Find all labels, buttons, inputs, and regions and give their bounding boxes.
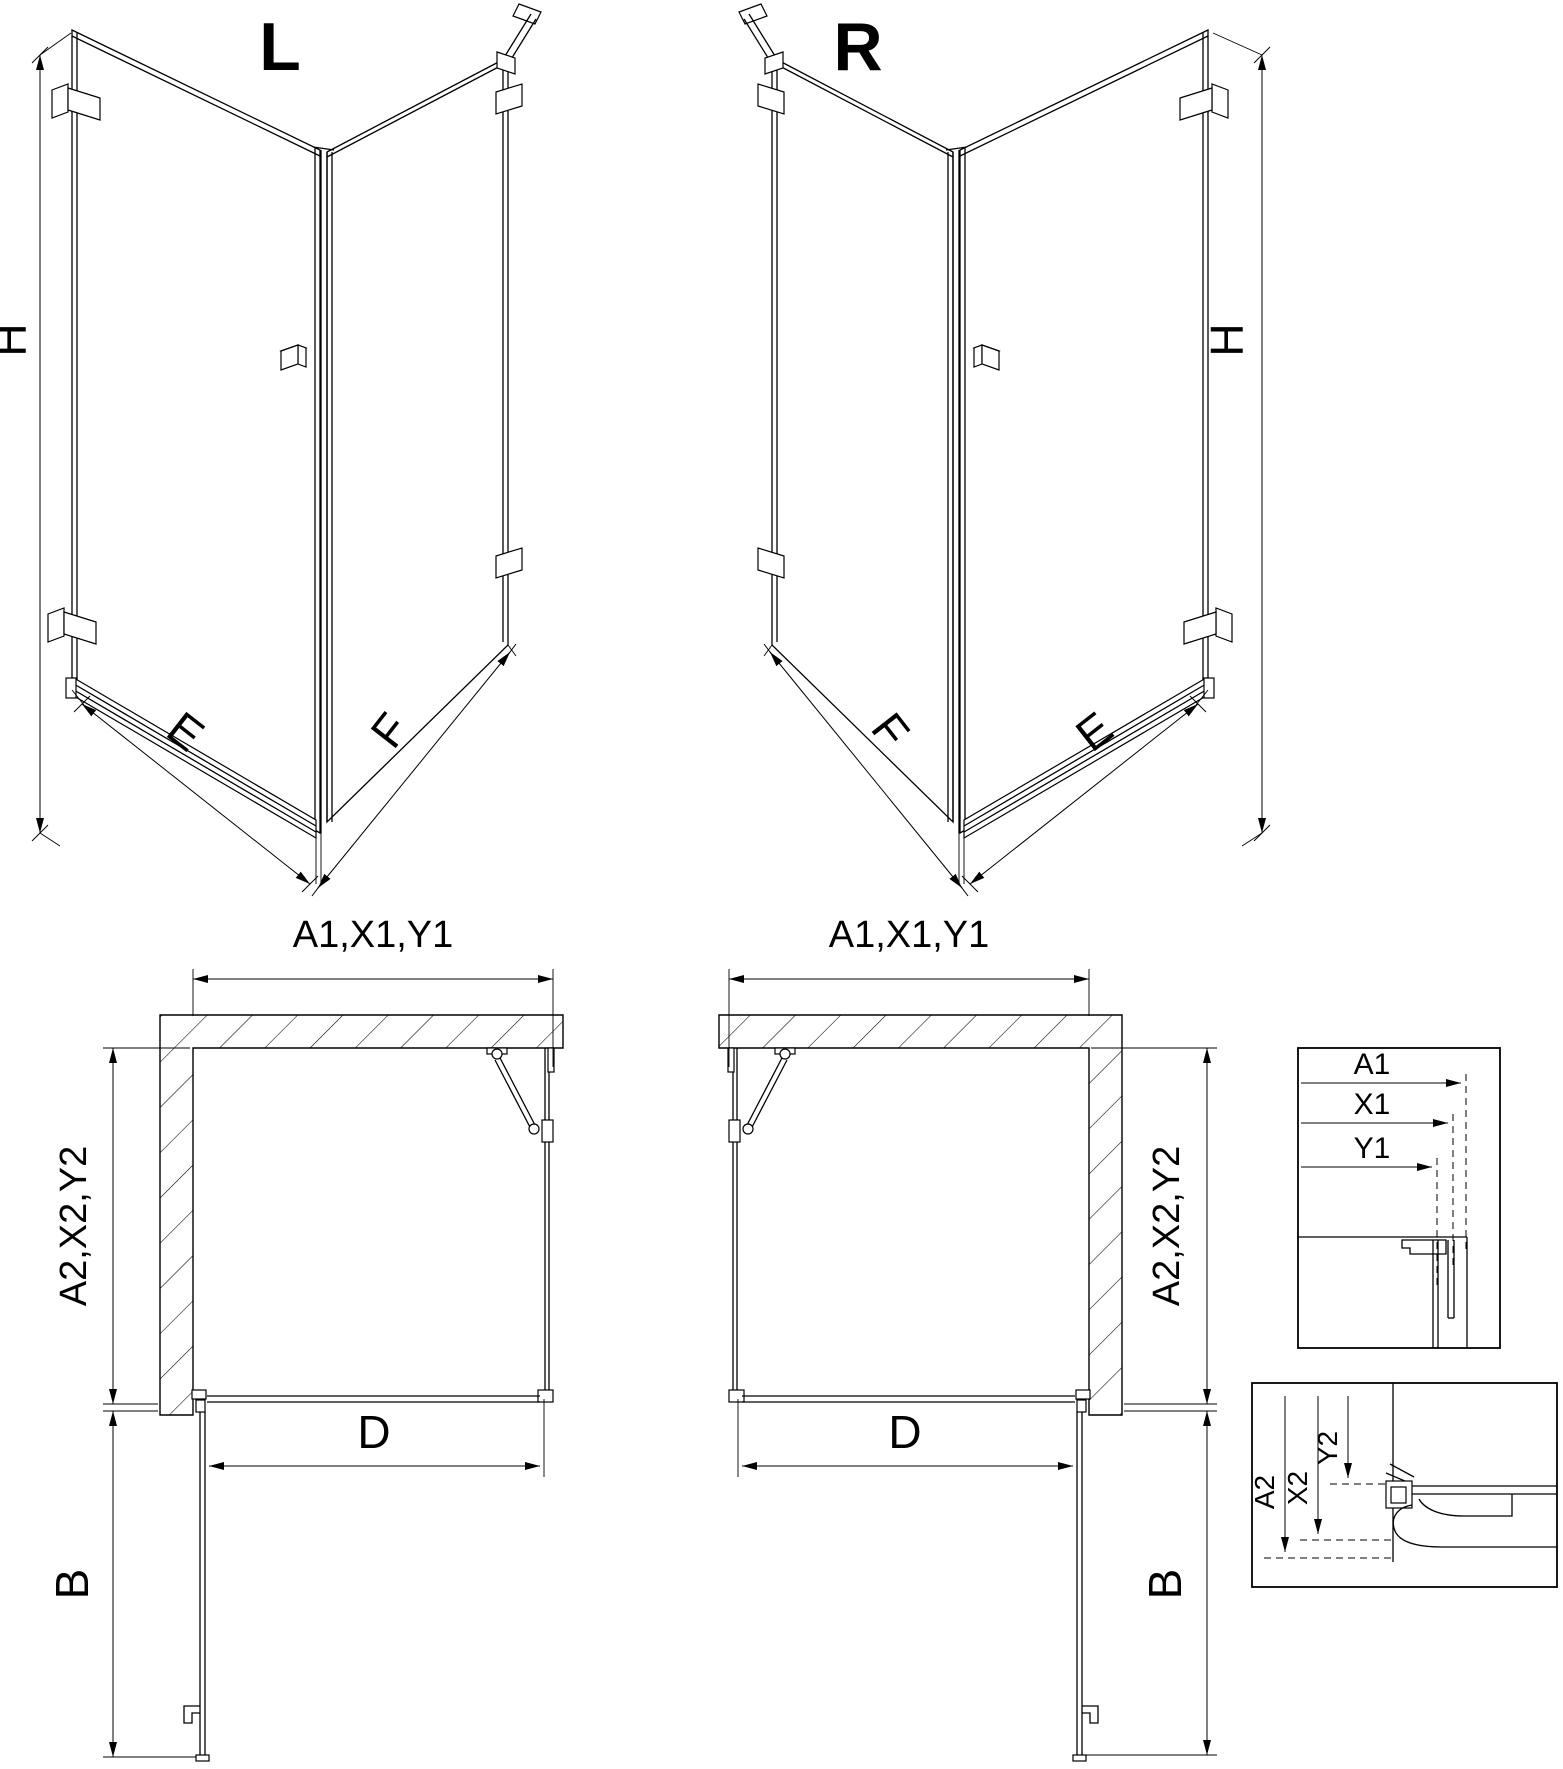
- dim-label-e-right: E: [1066, 701, 1122, 761]
- fixed-panel-right-view: [772, 57, 953, 822]
- drawing-canvas: L H E F: [0, 0, 1563, 1769]
- wall-bracket-icon: [758, 548, 784, 578]
- hinge-bottom-icon: [48, 608, 64, 642]
- technical-drawing-sheet: L H E F: [0, 0, 1563, 1769]
- support-bar-icon: [497, 4, 541, 74]
- dim-label-d-left: D: [357, 1406, 390, 1458]
- dim-label-d-right: D: [888, 1406, 921, 1458]
- support-bar-icon: [739, 4, 783, 74]
- door-handle-icon: [281, 345, 306, 370]
- detail-box-bottom: A2 X2 Y2: [1249, 1383, 1557, 1587]
- door-handle-icon: [974, 345, 999, 370]
- open-door-plan: [184, 1390, 209, 1761]
- dim-line-f-right: [770, 652, 962, 888]
- view-title-left: L: [259, 9, 301, 85]
- dim-line-f-left: [318, 652, 510, 888]
- wall-bracket-icon: [758, 84, 784, 114]
- detail-label-a2: A2: [1249, 1475, 1280, 1509]
- detail-label-x1: X1: [1354, 1088, 1391, 1121]
- wall-bracket-icon: [496, 548, 522, 578]
- threshold-bar: [964, 678, 1206, 838]
- iso-view-right: R H E F: [739, 4, 1270, 896]
- plan-view-left: A1,X1,Y1 A2,X2,Y2 B D: [46, 914, 563, 1761]
- dim-label-e-left: E: [158, 701, 214, 761]
- dim-label-h-left: H: [0, 323, 36, 356]
- door-handle-plan-icon: [1082, 1706, 1098, 1723]
- dim-label-b-left: B: [46, 1569, 98, 1600]
- support-bar-plan-icon: [487, 1048, 553, 1142]
- dim-label-a2-right: A2,X2,Y2: [1146, 1146, 1188, 1307]
- corner-profile: [729, 1390, 744, 1402]
- hinge-bottom-icon: [1216, 608, 1232, 642]
- wall-profile-section: [1402, 1240, 1446, 1254]
- view-title-right: R: [833, 9, 882, 85]
- wall-bracket-icon: [496, 84, 522, 114]
- detail-label-a1: A1: [1354, 1048, 1391, 1081]
- dim-label-a1-right: A1,X1,Y1: [829, 914, 990, 956]
- dim-label-a1-left: A1,X1,Y1: [293, 914, 454, 956]
- door-handle-plan-icon: [184, 1706, 200, 1723]
- tray-profile-section: [1386, 1464, 1557, 1547]
- dim-label-b-right: B: [1139, 1569, 1191, 1600]
- support-bar-plan-icon: [729, 1048, 795, 1142]
- plan-view-right: A1,X1,Y1 A2,X2,Y2 B D: [719, 914, 1217, 1761]
- iso-view-left: L H E F: [0, 4, 541, 896]
- dim-label-h-right: H: [1201, 323, 1253, 356]
- corner-profile: [538, 1390, 553, 1402]
- detail-label-y1: Y1: [1354, 1132, 1391, 1165]
- open-door-plan: [1073, 1390, 1098, 1761]
- dim-label-f-right: F: [861, 703, 919, 757]
- detail-label-y2: Y2: [1312, 1431, 1343, 1465]
- dim-label-a2-left: A2,X2,Y2: [53, 1146, 95, 1307]
- detail-label-x2: X2: [1282, 1471, 1313, 1505]
- detail-box-top: A1 X1 Y1: [1298, 1048, 1500, 1348]
- hinge-top-icon: [1212, 84, 1228, 118]
- threshold-bar: [74, 678, 316, 838]
- fixed-panel-left-view: [327, 57, 508, 822]
- hinge-top-icon: [52, 84, 68, 118]
- dim-label-f-left: F: [360, 703, 418, 757]
